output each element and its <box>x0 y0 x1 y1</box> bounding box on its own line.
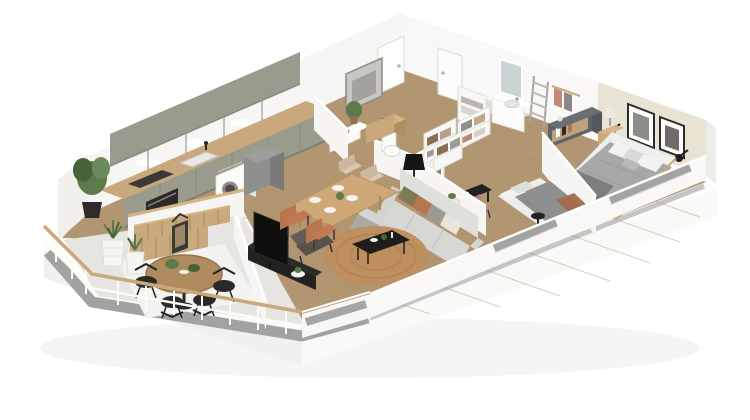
balcony-planter-1 <box>102 220 124 266</box>
floor-plan-stage <box>0 0 750 420</box>
bathroom-mirror <box>500 59 522 99</box>
right-end-wall <box>706 120 716 184</box>
balcony-planter-2 <box>126 234 144 274</box>
floor-plan-image <box>0 0 750 420</box>
